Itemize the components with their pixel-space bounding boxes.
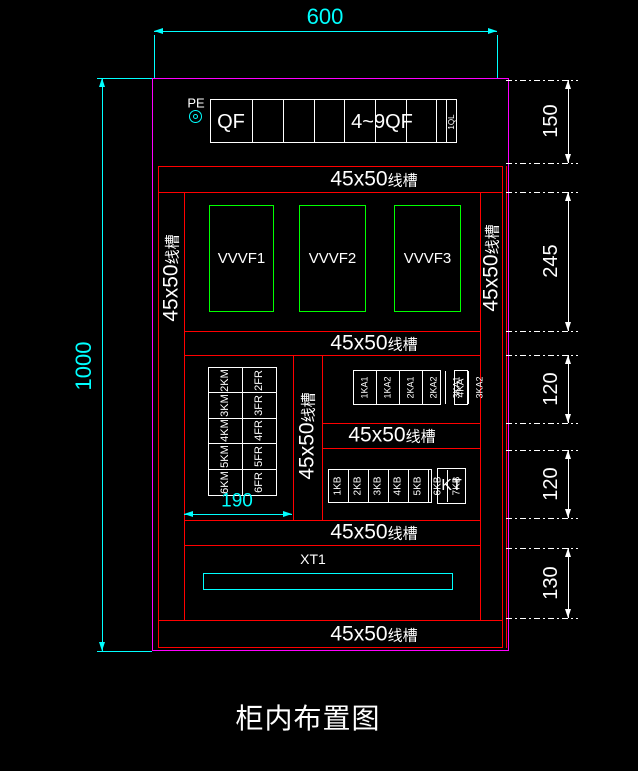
frame-line <box>293 355 294 520</box>
arrow-up-icon <box>565 192 571 201</box>
kt-timer: KT <box>437 468 466 504</box>
vvvf3-drive: VVVF3 <box>394 205 461 312</box>
qf-breaker-label: QF <box>217 112 245 132</box>
ka-label: 1KA2 <box>384 376 393 398</box>
duct-size: 45x50 <box>330 521 387 544</box>
dim-line-150 <box>568 80 569 163</box>
arrow-down-icon <box>565 609 571 618</box>
dim-label-120a: 120 <box>541 372 561 405</box>
grid-cell: 2KM <box>209 368 243 393</box>
ext-line <box>154 35 155 78</box>
ext-line <box>506 423 578 424</box>
frame-line <box>158 620 503 621</box>
grid-cell: 3FR <box>243 393 277 418</box>
kb-label: 3KB <box>373 477 383 496</box>
fr-label: 4FR <box>254 421 265 442</box>
arrow-up-icon <box>565 450 571 459</box>
duct-type: 线槽 <box>388 173 418 190</box>
duct-label-mid2: 45x50线槽 <box>348 425 435 446</box>
ext-line <box>506 163 578 164</box>
kb-relay-group: 1KB 2KB 3KB 4KB 5KB 6KB 7KB <box>328 469 432 503</box>
duct-size: 45x50 <box>160 264 183 321</box>
grid-cell: 5KM <box>209 444 243 469</box>
ql-switch-label: 1QL <box>448 114 456 129</box>
ka-label: 1KA1 <box>361 376 370 398</box>
duct-type: 线槽 <box>388 628 418 645</box>
grid-cell: 5FR <box>243 444 277 469</box>
relay-cell: 2KB <box>349 470 369 502</box>
dim-line-height <box>102 78 103 651</box>
km-label: 2KM <box>220 369 231 392</box>
duct-type: 线槽 <box>165 234 182 264</box>
cad-drawing-cabinet-layout: 600 1000 PE QF 4~9QF 1QL 4 <box>0 0 638 771</box>
drawing-title: 柜内布置图 <box>235 705 380 733</box>
duct-label-right: 45x50线槽 <box>481 224 502 311</box>
arrow-right-icon <box>283 511 292 517</box>
ka-label: 2KA2 <box>430 376 439 398</box>
arrow-right-icon <box>488 28 497 34</box>
relay-cell: 5KB <box>409 470 429 502</box>
ext-line <box>97 78 152 79</box>
relay-cell: 2KA2 <box>423 371 446 404</box>
duct-type: 线槽 <box>388 337 418 354</box>
frame-line <box>158 192 503 193</box>
vvvf2-drive: VVVF2 <box>299 205 366 312</box>
duct-label-left: 45x50线槽 <box>161 234 182 321</box>
divider <box>344 100 345 142</box>
kb-label: 1KB <box>333 477 343 496</box>
duct-label-mid3: 45x50线槽 <box>330 522 417 543</box>
kb-label: 2KB <box>353 477 363 496</box>
relay-cell: 1KA1 <box>354 371 377 404</box>
duct-label-mid1: 45x50线槽 <box>330 333 417 354</box>
vvvf1-drive: VVVF1 <box>209 205 274 312</box>
vvvf3-label: VVVF3 <box>404 250 452 267</box>
frame-line <box>184 192 185 620</box>
ext-line <box>97 651 152 652</box>
relay-cell: 3KA2 <box>469 371 491 404</box>
dim-label-150: 150 <box>541 104 561 137</box>
kt-label: KT <box>441 477 461 495</box>
qf-range-label: 4~9QF <box>351 112 413 132</box>
grid-cell: 4KM <box>209 419 243 444</box>
duct-size: 45x50 <box>330 332 387 355</box>
km-label: 5KM <box>220 445 231 468</box>
ka-label: 2KA1 <box>407 376 416 398</box>
frame-line <box>322 355 323 520</box>
divider <box>283 100 284 142</box>
duct-size: 45x50 <box>330 623 387 646</box>
km-fr-grid: 2KM 2FR 3KM 3FR 4KM 4FR 5KM 5FR 6KM 6FR <box>208 367 277 496</box>
ext-line <box>497 35 498 78</box>
dim-line-width <box>154 31 497 32</box>
breaker-panel: QF 4~9QF 1QL <box>210 99 457 143</box>
frame-line <box>184 355 480 356</box>
km-label: 4KM <box>220 420 231 443</box>
arrow-left-icon <box>154 28 163 34</box>
dim-label-height: 1000 <box>73 342 95 391</box>
duct-type: 线槽 <box>406 429 436 446</box>
ext-line <box>506 518 578 519</box>
relay-cell: 3KB <box>369 470 389 502</box>
dim-label-grid-width: 190 <box>221 492 253 511</box>
arrow-left-icon <box>184 511 193 517</box>
dim-label-width: 600 <box>307 6 344 28</box>
fr-label: 3FR <box>254 395 265 416</box>
ka4-relay: 4KA <box>454 370 468 405</box>
ka-label: 3KA2 <box>476 376 485 398</box>
duct-type: 线槽 <box>388 526 418 543</box>
frame-line <box>184 545 480 546</box>
frame-line <box>506 166 507 648</box>
arrow-up-icon <box>99 78 105 87</box>
ext-line <box>506 618 578 619</box>
relay-cell: 2KA1 <box>400 371 423 404</box>
arrow-down-icon <box>565 509 571 518</box>
duct-label-bottom: 45x50线槽 <box>330 624 417 645</box>
dim-label-245: 245 <box>541 244 561 277</box>
relay-cell: 1KA2 <box>377 371 400 404</box>
duct-label-center: 45x50线槽 <box>297 392 318 479</box>
dim-line-grid-width <box>184 514 292 515</box>
arrow-down-icon <box>565 154 571 163</box>
divider <box>436 100 437 142</box>
grid-cell: 2FR <box>243 368 277 393</box>
ka-relay-group: 1KA1 1KA2 2KA1 2KA2 3KA1 3KA2 <box>353 370 441 405</box>
arrow-down-icon <box>565 414 571 423</box>
arrow-up-icon <box>565 80 571 89</box>
xt1-label: XT1 <box>300 552 326 566</box>
arrow-up-icon <box>565 355 571 364</box>
vvvf2-label: VVVF2 <box>309 250 357 267</box>
duct-size: 45x50 <box>480 254 503 311</box>
pe-label: PE <box>187 97 204 110</box>
grid-cell: 4FR <box>243 419 277 444</box>
xt1-terminal-strip <box>203 573 453 590</box>
arrow-down-icon <box>565 322 571 331</box>
duct-type: 线槽 <box>301 392 318 422</box>
duct-size: 45x50 <box>296 422 319 479</box>
kb-label: 4KB <box>393 477 403 496</box>
km-label: 3KM <box>220 394 231 417</box>
duct-type: 线槽 <box>485 224 502 254</box>
arrow-up-icon <box>565 548 571 557</box>
dim-line-120a <box>568 355 569 423</box>
dim-line-130 <box>568 548 569 618</box>
earth-terminal-inner-icon <box>193 114 198 119</box>
relay-cell: 1KB <box>329 470 349 502</box>
duct-size: 45x50 <box>348 424 405 447</box>
fr-label: 5FR <box>254 446 265 467</box>
fr-label: 2FR <box>254 370 265 391</box>
fr-label: 6FR <box>254 472 265 493</box>
arrow-down-icon <box>99 642 105 651</box>
dim-label-130: 130 <box>541 566 561 599</box>
relay-cell: 4KB <box>389 470 409 502</box>
dim-label-120b: 120 <box>541 467 561 500</box>
vvvf1-label: VVVF1 <box>218 250 266 267</box>
dim-line-120b <box>568 450 569 518</box>
kb-label: 5KB <box>413 477 423 496</box>
frame-line <box>322 448 480 449</box>
duct-size: 45x50 <box>330 168 387 191</box>
duct-label-top: 45x50线槽 <box>330 169 417 190</box>
divider <box>314 100 315 142</box>
ka4-label: 4KA <box>456 378 466 397</box>
dim-line-245 <box>568 192 569 331</box>
grid-cell: 3KM <box>209 393 243 418</box>
ext-line <box>506 331 578 332</box>
divider <box>252 100 253 142</box>
